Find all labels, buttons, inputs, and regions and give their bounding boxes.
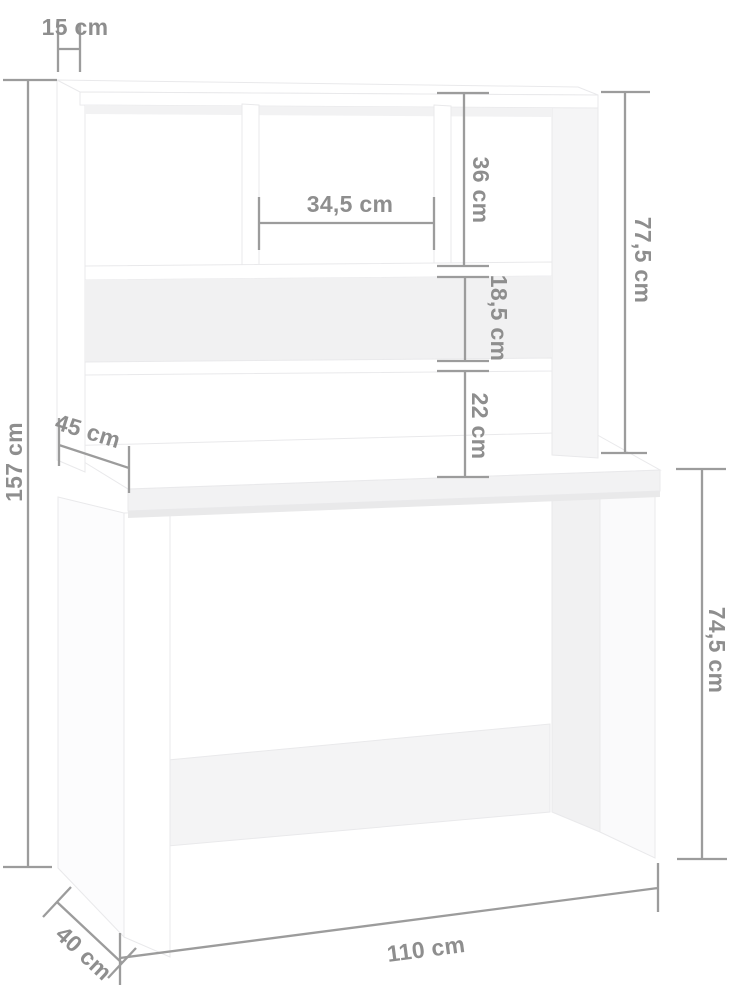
hutch-shelf-slot-interior <box>85 276 552 362</box>
hutch-right-upright <box>552 94 598 458</box>
dimension-diagram-page: 15 cm 157 cm 34,5 cm 36 cm 77,5 cm 18,5 <box>0 0 738 985</box>
desk-right-panel-inner-face <box>552 466 600 832</box>
desk-left-panel-outer-face <box>58 497 124 937</box>
dim-top-depth-label: 15 cm <box>42 14 109 40</box>
dim-total-height-label: 157 cm <box>1 422 27 502</box>
dim-shelf-to-desktop-gap-label: 22 cm <box>467 393 493 460</box>
hutch-divider-right <box>434 105 451 268</box>
dim-hutch-height-label: 77,5 cm <box>630 217 656 304</box>
furniture-diagram: 15 cm 157 cm 34,5 cm 36 cm 77,5 cm 18,5 <box>0 0 738 985</box>
desk-left-panel-front-edge <box>124 511 170 957</box>
dim-upper-cubby-height-label: 36 cm <box>468 157 494 224</box>
dim-desk-height-label: 74,5 cm <box>704 607 730 694</box>
hutch-divider-left <box>242 104 259 268</box>
desk-right-panel-front-edge <box>600 469 655 858</box>
dim-middle-cubby-width-label: 34,5 cm <box>307 191 394 217</box>
dim-shelf-slot-height-label: 18,5 cm <box>486 275 512 362</box>
